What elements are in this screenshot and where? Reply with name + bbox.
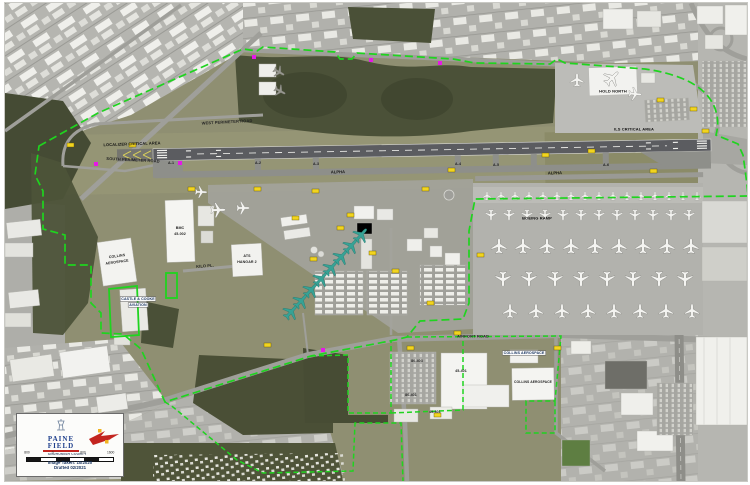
label-collins-aerospace-south-roof: COLLINS AEROSPACE (514, 380, 552, 384)
label-taxiway-alpha-east: ALPHA (548, 171, 562, 176)
label-ils-critical-area: ILS CRITICAL AREA (614, 127, 654, 132)
scale-tick-2: 800 (80, 451, 86, 454)
control-tower-icon (54, 418, 68, 431)
label-bmc-2: 45-002 (174, 232, 186, 236)
label-castle-cooke-1: CASTLE & COOKE (120, 296, 156, 301)
legend-box: PAINE FIELD SNOHOMISH COUNTY 800 0 800 1… (16, 413, 124, 477)
label-building-80-401: 80-401 (405, 393, 417, 397)
label-hold-north: HOLD NORTH (599, 89, 627, 94)
label-bmc-1: BMC (176, 226, 184, 230)
scale-tick-3: 1600 (107, 451, 114, 454)
legend-logo-line2: FIELD (37, 443, 85, 450)
label-building-45-601: 45-601 (429, 410, 441, 414)
aerial-basemap (5, 3, 747, 481)
label-taxiway-alpha-west: ALPHA (331, 170, 345, 175)
label-boeing-ramp: BOEING RAMP (522, 216, 552, 221)
label-building-80-403: 80-403 (411, 359, 423, 363)
label-taxiway-a4: A-4 (455, 162, 461, 166)
label-taxiway-a1: A-1 (168, 161, 174, 165)
legend-drafted: Drafted 02/2021 (37, 466, 103, 471)
label-airport-road: AIRPORT ROAD (457, 334, 489, 339)
label-collins-aerospace-south-chip: COLLINS AEROSPACE (502, 350, 545, 355)
scale-tick-0: 800 (24, 451, 30, 454)
label-ats-hangar-2: HANGAR 2 (237, 260, 257, 264)
label-taxiway-a6: A-6 (603, 163, 609, 167)
aerial-map-canvas: WEST PERIMETER ROAD SOUTH PERIMETER ROAD… (4, 2, 748, 482)
label-taxiway-a3: A-3 (313, 162, 319, 166)
label-building-45-401: 45-401 (455, 369, 467, 373)
north-arrow-icon (89, 427, 121, 447)
scale-tick-1: 0 (52, 451, 54, 454)
label-ats-hangar-1: ATS (243, 254, 250, 258)
label-taxiway-a2: A-2 (255, 161, 261, 165)
label-castle-cooke-2: AVIATION (128, 302, 148, 307)
label-taxiway-a5: A-5 (493, 163, 499, 167)
